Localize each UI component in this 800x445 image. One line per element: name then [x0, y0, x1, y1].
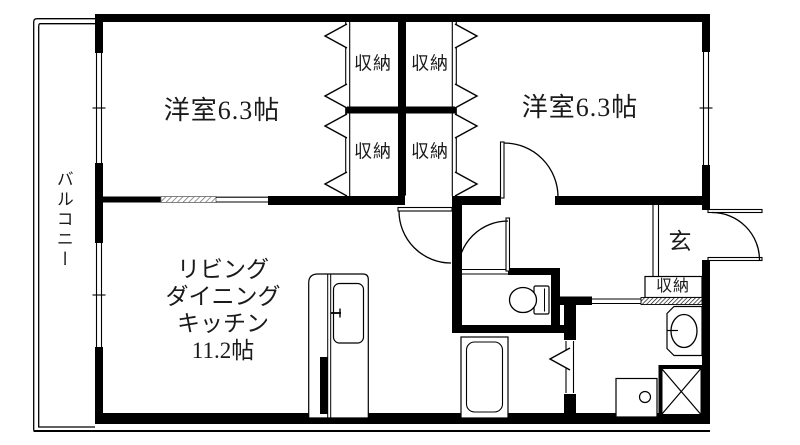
- balcony-label: バルコニー: [53, 170, 73, 270]
- equipment-box-icon: [616, 379, 657, 418]
- bathtub-icon: [461, 337, 508, 418]
- bedroom-right-label: 洋室6.3帖: [522, 93, 639, 123]
- door-entrance: [701, 210, 762, 261]
- window-icon-bedroom-right: [700, 52, 713, 165]
- washing-machine-pan-icon: [661, 367, 703, 416]
- washroom-opening: [592, 299, 641, 304]
- ldk-label-line3: キッチン: [166, 310, 281, 337]
- ldk-label: リビング ダイニング キッチン 11.2帖: [166, 256, 281, 364]
- closet-label-3: 収納: [354, 142, 392, 163]
- window-icon-ldk: [93, 243, 106, 347]
- entrance-label: 玄: [669, 229, 692, 255]
- sliding-door-icon: [103, 197, 268, 203]
- ldk-label-line2: ダイニング: [166, 283, 281, 310]
- entrance-storage-label: 収納: [656, 278, 690, 296]
- ldk-label-line1: リビング: [166, 256, 281, 283]
- door-toilet: [458, 218, 510, 274]
- ldk-label-line4: 11.2帖: [166, 337, 281, 364]
- floorplan: バルコニー 洋室6.3帖 洋室6.3帖 リビング ダイニング キッチン 11.2…: [0, 0, 800, 445]
- door-ldk: [398, 196, 452, 264]
- window-icon-bedroom-left: [93, 53, 106, 163]
- bedroom-left-label: 洋室6.3帖: [164, 96, 281, 126]
- door-bathroom-fold: [550, 340, 577, 394]
- washbasin-icon: [667, 307, 702, 356]
- closet-label-4: 収納: [411, 142, 449, 163]
- toilet-icon: [510, 286, 550, 314]
- entrance-step-line: [653, 204, 659, 278]
- closet-label-1: 収納: [354, 54, 392, 75]
- closet-label-2: 収納: [411, 54, 449, 75]
- floorplan-drawing: [0, 0, 800, 445]
- door-bedroom-right: [501, 142, 559, 206]
- kitchen-counter-icon: [309, 274, 369, 418]
